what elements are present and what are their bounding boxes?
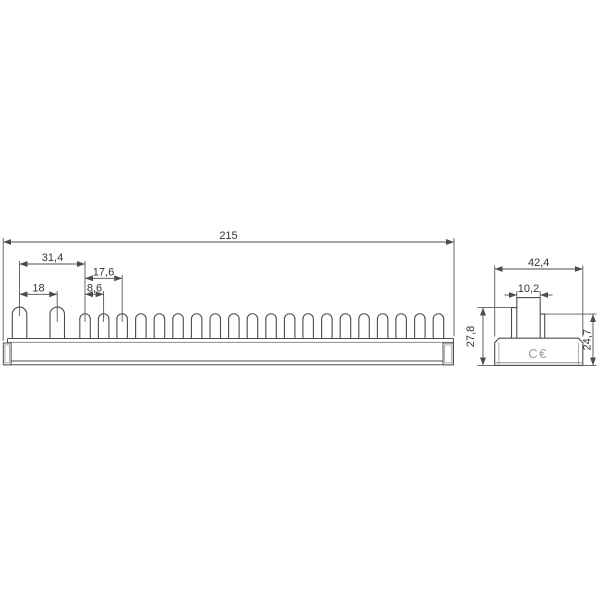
busbar-body-section: C€ (495, 338, 583, 365)
small-pins (80, 314, 444, 339)
dimension-pin1-pin3: 31,4 (20, 252, 86, 264)
section-pin (512, 298, 545, 339)
dimension-total-length: 215 (3, 230, 454, 242)
end-cap-left (3, 343, 11, 365)
dim-label-pin-width: 10,2 (518, 283, 539, 295)
dim-label-total-length: 215 (219, 230, 237, 242)
dimension-pin3-pin5: 17,6 (85, 266, 122, 278)
front-view: 215 31,4 17,6 18 8,6 (3, 230, 454, 365)
dimension-pin3-pin4: 8,6 (85, 282, 104, 294)
dim-label-overall-width: 42,4 (528, 257, 549, 269)
dim-label-pin1-pin3: 31,4 (42, 252, 63, 264)
ce-marking: C€ (528, 346, 548, 361)
technical-drawing: 215 31,4 17,6 18 8,6 (0, 0, 600, 600)
dimension-overall-width: 42,4 (495, 257, 583, 269)
side-view: C€ 42,4 10,2 27,8 24,7 (465, 257, 597, 365)
dim-label-pin3-pin5: 17,6 (93, 266, 114, 278)
dim-label-pin3-pin4: 8,6 (87, 282, 102, 294)
dimension-overall-height: 27,8 (465, 308, 483, 366)
busbar-teeth (12, 307, 443, 338)
drawing-page: 215 31,4 17,6 18 8,6 (0, 0, 600, 600)
dimension-pin1-pin2: 18 (20, 282, 58, 294)
dim-label-pin1-pin2: 18 (32, 282, 44, 294)
center-pin (517, 298, 540, 339)
dim-label-overall-height: 27,8 (465, 326, 477, 347)
left-flange (512, 308, 517, 339)
dimension-pin-width: 10,2 (505, 283, 553, 295)
right-flange (540, 314, 545, 338)
dim-label-body-height: 24,7 (582, 329, 594, 350)
busbar-rail (3, 339, 453, 365)
